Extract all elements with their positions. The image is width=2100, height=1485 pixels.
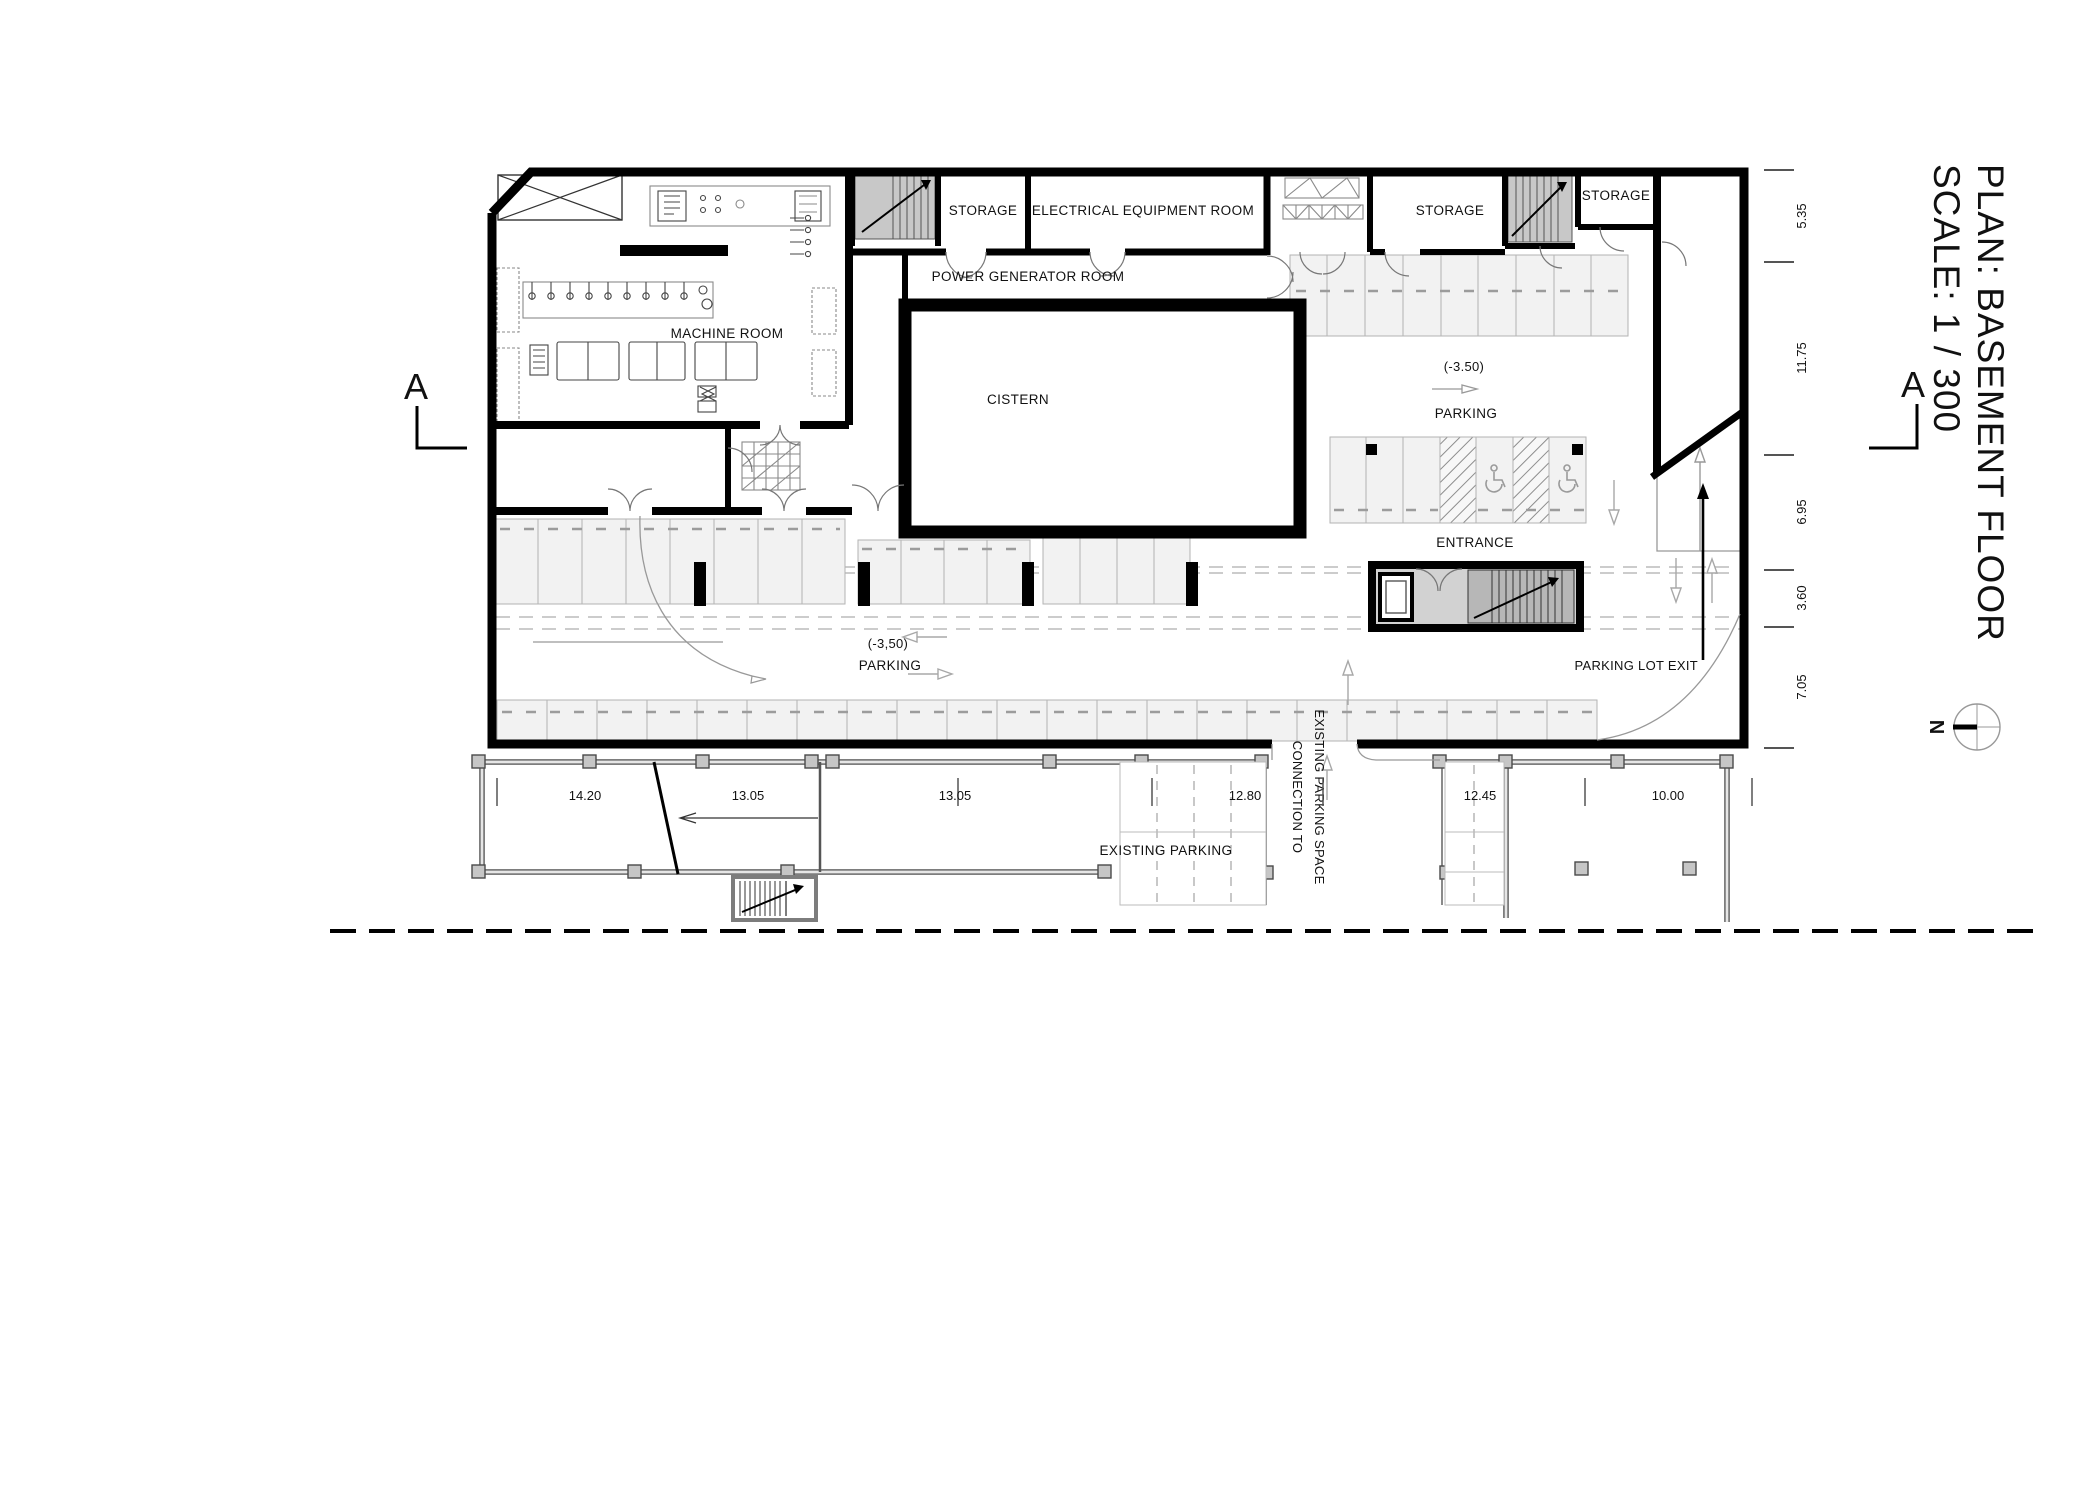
parking-stall-row-bottom <box>497 700 1597 741</box>
label-connection-line1: CONNECTION TO <box>1290 741 1305 853</box>
column <box>1572 444 1583 455</box>
drawing-sheet: MACHINE ROOM STORAGE ELECTRICAL EQUIPMEN… <box>0 0 2100 1485</box>
entrance-core <box>1372 565 1580 628</box>
north-compass-icon: N <box>1927 704 2000 750</box>
entrance-parking-block <box>1330 437 1586 523</box>
dim-13-05-b: 13.05 <box>939 788 972 803</box>
section-marker-left: A <box>404 366 467 448</box>
cistern-tank <box>905 305 1300 532</box>
label-level-left: (-3,50) <box>868 636 908 651</box>
label-electrical-equipment-room: ELECTRICAL EQUIPMENT ROOM <box>1032 203 1254 218</box>
label-entrance: ENTRANCE <box>1436 535 1513 550</box>
parking-stall-row-right <box>1290 255 1628 336</box>
machine-room-equipment <box>497 186 836 490</box>
dim-12-45: 12.45 <box>1464 788 1497 803</box>
north-label: N <box>1927 720 1949 734</box>
label-machine-room: MACHINE ROOM <box>671 326 784 341</box>
stair-core-top-left <box>855 176 935 239</box>
existing-stairwell <box>733 877 816 920</box>
floor-plan-basement: MACHINE ROOM STORAGE ELECTRICAL EQUIPMEN… <box>0 0 2100 1485</box>
label-storage-3: STORAGE <box>1582 188 1651 203</box>
svg-text:A: A <box>404 366 428 407</box>
dim-13-05-a: 13.05 <box>732 788 765 803</box>
right-dimensions: 5.35 11.75 6.95 3.60 7.05 <box>1764 170 1809 748</box>
column <box>1366 444 1377 455</box>
section-marker-right: A <box>1869 364 1925 448</box>
label-storage-1: STORAGE <box>949 203 1018 218</box>
dim-6-95: 6.95 <box>1794 499 1809 524</box>
label-power-generator-room: POWER GENERATOR ROOM <box>932 269 1125 284</box>
svg-text:A: A <box>1901 364 1925 405</box>
label-level-right: (-3.50) <box>1444 359 1484 374</box>
label-parking-left: PARKING <box>859 658 922 673</box>
existing-stalls <box>1120 762 1504 905</box>
title-block: PLAN: BASEMENT FLOOR SCALE: 1 / 300 <box>1926 164 2011 642</box>
label-existing-parking: EXISTING PARKING <box>1100 843 1233 858</box>
sheet-title: PLAN: BASEMENT FLOOR <box>1970 164 2011 642</box>
dim-10-00: 10.00 <box>1652 788 1685 803</box>
existing-columns <box>472 755 1733 879</box>
dim-11-75: 11.75 <box>1794 342 1809 374</box>
label-connection-line2: EXISTING PARKING SPACE <box>1312 709 1327 884</box>
label-cistern: CISTERN <box>987 392 1049 407</box>
curb-curve <box>1597 614 1740 740</box>
dim-12-80: 12.80 <box>1229 788 1262 803</box>
hatched-stall <box>1440 437 1476 523</box>
label-storage-2: STORAGE <box>1416 203 1485 218</box>
label-parking-right: PARKING <box>1435 406 1498 421</box>
dim-14-20: 14.20 <box>569 788 602 803</box>
dim-5-35: 5.35 <box>1794 203 1809 228</box>
existing-structure <box>472 744 1733 922</box>
dim-3-60: 3.60 <box>1794 585 1809 610</box>
stair-core-top-right <box>1508 176 1572 242</box>
sheet-scale: SCALE: 1 / 300 <box>1926 164 1967 433</box>
label-parking-lot-exit: PARKING LOT EXIT <box>1574 658 1698 673</box>
dim-7-05: 7.05 <box>1794 674 1809 699</box>
beam-symbols <box>1283 178 1363 219</box>
exit-arrow-head <box>1697 483 1709 499</box>
